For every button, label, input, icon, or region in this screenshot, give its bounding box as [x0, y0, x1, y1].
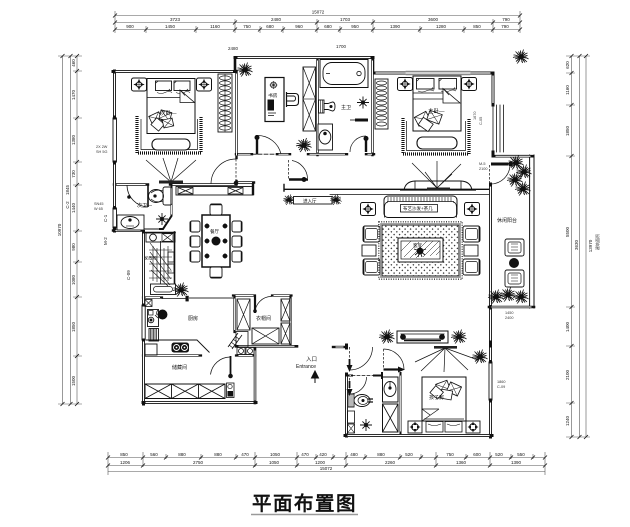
svg-text:入口: 入口 — [306, 356, 317, 363]
svg-text:SN45: SN45 — [94, 202, 104, 206]
svg-text:2260: 2260 — [385, 460, 396, 465]
svg-text:2400: 2400 — [505, 316, 513, 320]
svg-text:1400: 1400 — [565, 321, 570, 332]
svg-text:1050: 1050 — [270, 452, 281, 457]
svg-text:1860: 1860 — [497, 380, 505, 384]
svg-text:2480: 2480 — [228, 46, 239, 51]
svg-text:15072: 15072 — [312, 10, 325, 15]
svg-text:1470: 1470 — [71, 89, 76, 100]
svg-text:1200: 1200 — [315, 460, 326, 465]
svg-text:620: 620 — [565, 61, 570, 69]
svg-text:孩子房: 孩子房 — [429, 394, 444, 401]
svg-text:3600: 3600 — [428, 17, 439, 22]
svg-text:680: 680 — [324, 24, 332, 29]
svg-text:C-05: C-05 — [479, 117, 483, 125]
svg-text:1280: 1280 — [436, 24, 447, 29]
svg-text:1206: 1206 — [120, 460, 131, 465]
svg-text:M-5: M-5 — [479, 162, 486, 166]
svg-text:15072: 15072 — [320, 466, 333, 471]
svg-text:1850: 1850 — [71, 321, 76, 332]
svg-text:790: 790 — [501, 24, 509, 29]
svg-text:布艺沙发+茶几: 布艺沙发+茶几 — [403, 205, 433, 212]
svg-text:1850: 1850 — [565, 125, 570, 136]
svg-text:1390: 1390 — [390, 24, 401, 29]
svg-text:560: 560 — [150, 452, 158, 457]
svg-text:420: 420 — [319, 452, 327, 457]
svg-text:1240: 1240 — [565, 415, 570, 426]
svg-text:5500: 5500 — [565, 226, 570, 237]
svg-text:3723: 3723 — [170, 17, 181, 22]
svg-text:1703: 1703 — [340, 17, 351, 22]
svg-text:平面布置图: 平面布置图 — [252, 492, 357, 515]
svg-text:950: 950 — [351, 24, 359, 29]
svg-text:1670: 1670 — [473, 112, 477, 120]
svg-text:2100: 2100 — [479, 167, 487, 171]
svg-text:470: 470 — [241, 452, 249, 457]
svg-text:750: 750 — [446, 452, 454, 457]
svg-text:1845: 1845 — [65, 184, 70, 195]
svg-text:C-09: C-09 — [497, 385, 505, 389]
svg-text:1450: 1450 — [165, 24, 176, 29]
svg-text:W 65: W 65 — [94, 207, 103, 211]
svg-text:880: 880 — [178, 452, 186, 457]
svg-text:480: 480 — [350, 452, 358, 457]
svg-text:M-2: M-2 — [103, 237, 108, 245]
svg-text:550: 550 — [517, 452, 525, 457]
svg-text:储藏间: 储藏间 — [172, 364, 187, 371]
svg-text:460: 460 — [71, 59, 76, 67]
svg-text:520: 520 — [405, 452, 413, 457]
svg-text:600: 600 — [473, 452, 481, 457]
svg-text:520: 520 — [495, 452, 503, 457]
svg-text:厨房: 厨房 — [188, 315, 198, 322]
svg-text:1080: 1080 — [71, 274, 76, 285]
svg-text:900: 900 — [126, 24, 134, 29]
svg-text:850: 850 — [473, 24, 481, 29]
svg-text:2750: 2750 — [193, 460, 204, 465]
svg-text:Entrance: Entrance — [296, 364, 316, 370]
svg-text:C-2: C-2 — [65, 201, 70, 209]
svg-text:1160: 1160 — [210, 24, 220, 29]
svg-text:C-09: C-09 — [126, 270, 131, 280]
svg-text:1380: 1380 — [71, 134, 76, 145]
svg-text:主卧—: 主卧— — [428, 107, 445, 115]
svg-text:730: 730 — [71, 170, 76, 178]
svg-text:13970: 13970 — [588, 239, 593, 252]
svg-text:10970: 10970 — [57, 223, 62, 236]
svg-text:1050: 1050 — [269, 460, 280, 465]
svg-text:进入厅: 进入厅 — [303, 197, 317, 204]
svg-text:1450: 1450 — [505, 311, 513, 315]
svg-text:750: 750 — [243, 24, 251, 29]
svg-text:次卧—: 次卧— — [160, 109, 177, 117]
svg-text:衣帽间: 衣帽间 — [256, 315, 271, 322]
svg-text:680: 680 — [266, 24, 274, 29]
svg-text:470: 470 — [301, 452, 309, 457]
svg-text:2480: 2480 — [271, 17, 282, 22]
svg-text:3630: 3630 — [574, 239, 579, 250]
svg-text:1440: 1440 — [71, 202, 76, 213]
svg-text:1500: 1500 — [71, 375, 76, 386]
svg-text:C-1: C-1 — [103, 214, 108, 222]
svg-text:880: 880 — [377, 452, 385, 457]
svg-text:1700: 1700 — [336, 44, 347, 49]
svg-text:1390: 1390 — [511, 460, 522, 465]
svg-text:790: 790 — [502, 17, 510, 22]
svg-text:休闲阳台: 休闲阳台 — [497, 217, 517, 224]
svg-text:1360: 1360 — [456, 460, 467, 465]
svg-text:980: 980 — [71, 243, 76, 251]
svg-text:880: 880 — [214, 452, 222, 457]
svg-text:960: 960 — [295, 24, 303, 29]
svg-text:主卫: 主卫 — [341, 104, 351, 111]
svg-text:SH 5G: SH 5G — [96, 150, 107, 154]
svg-text:850: 850 — [120, 452, 128, 457]
svg-text:2X 2W: 2X 2W — [96, 145, 108, 149]
svg-text:书房: 书房 — [268, 92, 278, 99]
svg-text:餐厅: 餐厅 — [210, 228, 219, 235]
svg-text:1160: 1160 — [565, 85, 570, 95]
svg-text:建筑面积: 建筑面积 — [594, 234, 600, 250]
svg-text:2100: 2100 — [565, 369, 570, 380]
svg-text:次卫—: 次卫— — [137, 202, 152, 209]
